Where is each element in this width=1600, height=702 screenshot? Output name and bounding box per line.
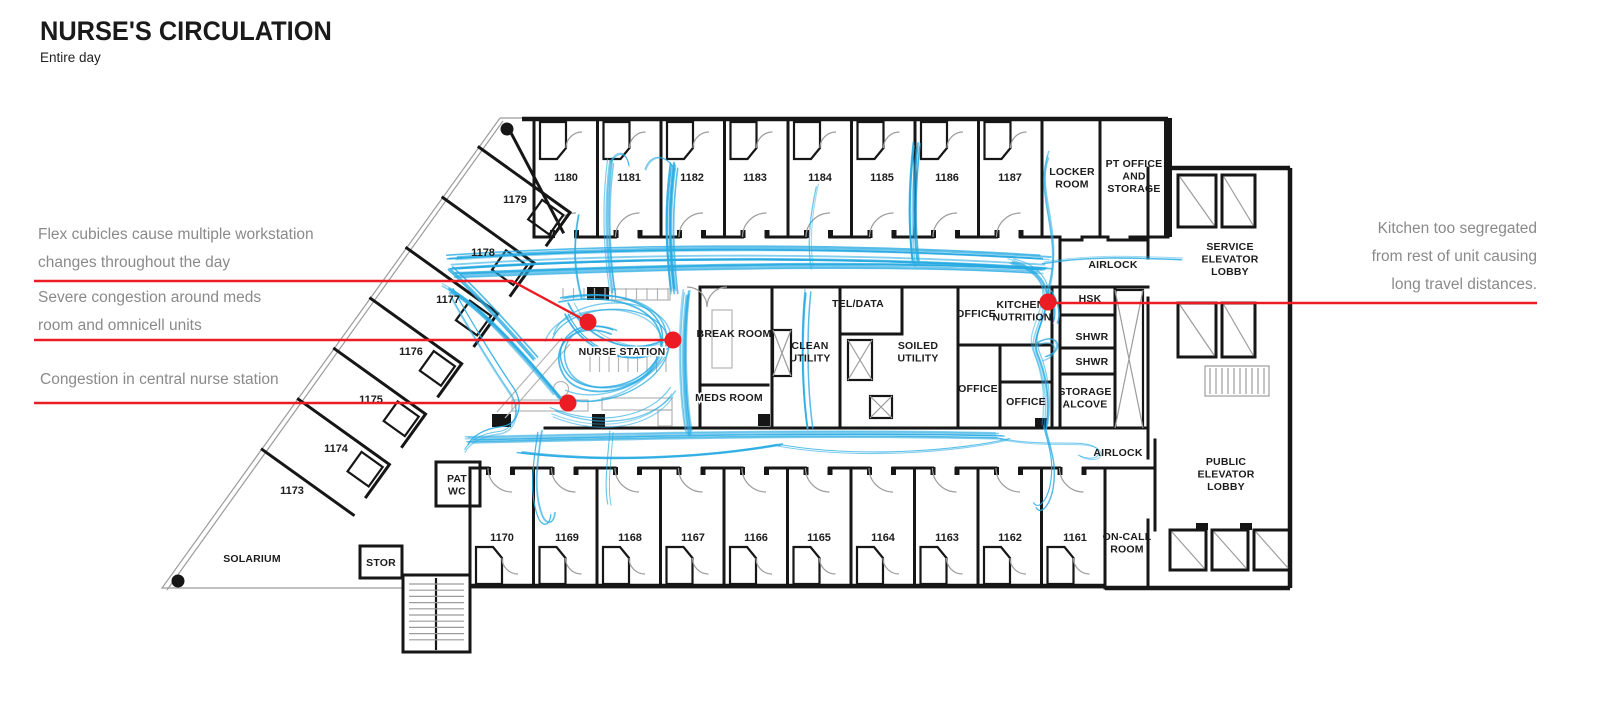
dot-flex-cubicles-note — [580, 314, 597, 331]
label-tel-data: TEL/DATA — [832, 298, 884, 310]
label-meds-room: MEDS ROOM — [695, 392, 763, 404]
label-clean-utility: CLEANUTILITY — [789, 340, 830, 365]
outer-walls — [360, 118, 1290, 652]
label-stor: STOR — [366, 557, 396, 569]
nurse-circulation-page: { "page": {"title": "NURSE'S CIRCULATION… — [0, 0, 1600, 702]
label-airlock-top: AIRLOCK — [1088, 259, 1137, 271]
plan-corner-dot-top — [501, 123, 514, 136]
label-room-1161: 1161 — [1063, 532, 1087, 544]
circulation-trace — [536, 431, 554, 523]
label-shwr-1: SHWR — [1076, 331, 1109, 343]
label-room-1169: 1169 — [555, 532, 579, 544]
label-room-1185: 1185 — [870, 172, 894, 184]
label-room-1166: 1166 — [744, 532, 768, 544]
label-break-room: BREAK ROOM — [697, 328, 772, 340]
dot-kitchen-segregated-note — [1040, 294, 1057, 311]
label-pat-wc: PATWC — [447, 473, 467, 498]
label-soiled-utility: SOILEDUTILITY — [897, 340, 938, 365]
label-service-elevator-lobby: SERVICEELEVATORLOBBY — [1201, 241, 1258, 278]
label-office-bottom-right: OFFICE — [1006, 396, 1046, 408]
label-room-1182: 1182 — [680, 172, 704, 184]
floor-plan: 1180118111821183118411851186118711701169… — [0, 0, 1600, 702]
label-room-1186: 1186 — [935, 172, 959, 184]
label-room-1175: 1175 — [359, 394, 383, 406]
label-room-1173: 1173 — [280, 485, 304, 497]
label-room-1163: 1163 — [935, 532, 959, 544]
label-airlock-bottom: AIRLOCK — [1093, 447, 1142, 459]
label-room-1174: 1174 — [324, 443, 349, 455]
label-room-1164: 1164 — [871, 532, 896, 544]
circulation-trace — [533, 433, 551, 525]
label-room-1176: 1176 — [399, 346, 423, 358]
label-room-1167: 1167 — [681, 532, 705, 544]
nurse-station-congestion-note: Congestion in central nurse station — [40, 366, 279, 394]
dot-meds-congestion-note — [665, 332, 682, 349]
label-room-1162: 1162 — [998, 532, 1022, 544]
label-room-1187: 1187 — [998, 172, 1022, 184]
label-office-top: OFFICE — [956, 308, 996, 320]
label-room-1177: 1177 — [436, 294, 460, 306]
meds-congestion-note: Severe congestion around meds room and o… — [38, 284, 261, 340]
label-room-1183: 1183 — [743, 172, 767, 184]
dot-nurse-station-congestion-note — [560, 395, 577, 412]
label-room-1170: 1170 — [490, 532, 514, 544]
label-public-elevator-lobby: PUBLICELEVATORLOBBY — [1197, 456, 1254, 493]
flex-cubicles-note: Flex cubicles cause multiple workstation… — [38, 221, 314, 277]
label-room-1180: 1180 — [554, 172, 578, 184]
label-locker-room: LOCKERROOM — [1049, 166, 1095, 191]
circulation-trace — [575, 215, 582, 298]
label-storage-alcove: STORAGEALCOVE — [1058, 386, 1111, 411]
label-room-1165: 1165 — [807, 532, 831, 544]
label-solarium: SOLARIUM — [223, 553, 281, 565]
label-room-1168: 1168 — [618, 532, 642, 544]
label-on-call-room: ON-CALLROOM — [1103, 531, 1152, 556]
label-pt-office-storage: PT OFFICEANDSTORAGE — [1106, 158, 1163, 195]
label-room-1179: 1179 — [503, 194, 527, 206]
room-labels: 1180118111821183118411851186118711701169… — [223, 158, 1259, 569]
label-office-bottom-left: OFFICE — [958, 383, 998, 395]
plan-corner-dot-solarium — [172, 575, 185, 588]
circulation-trace — [780, 439, 1010, 452]
label-room-1181: 1181 — [617, 172, 641, 184]
label-room-1178: 1178 — [471, 247, 495, 259]
label-room-1184: 1184 — [808, 172, 833, 184]
kitchen-segregated-note: Kitchen too segregated from rest of unit… — [1372, 215, 1537, 299]
label-nurse-station: NURSE STATION — [579, 346, 666, 358]
label-shwr-2: SHWR — [1076, 356, 1109, 368]
